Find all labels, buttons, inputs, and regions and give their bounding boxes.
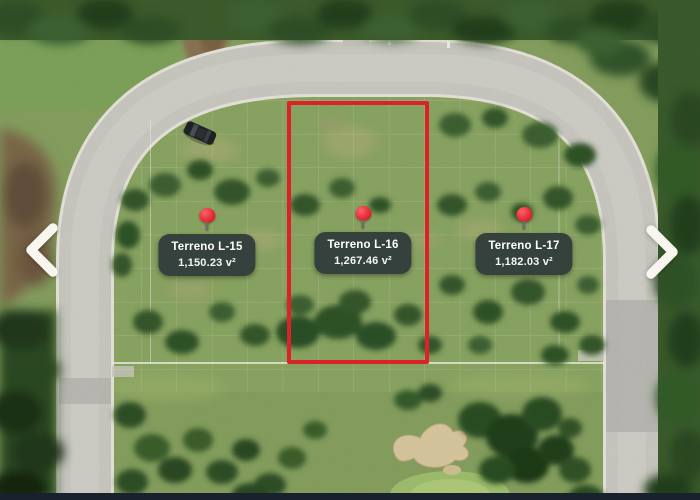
lot-label: Terreno L-17 1,182.03 v² (475, 233, 572, 275)
carousel-prev-button[interactable] (20, 220, 64, 280)
lot-label: Terreno L-16 1,267.46 v² (314, 232, 411, 274)
carousel-next-button[interactable] (640, 222, 684, 282)
lot-marker-l15: Terreno L-15 1,150.23 v² (158, 208, 255, 276)
chevron-right-icon (640, 222, 684, 282)
lot-area: 1,150.23 v² (171, 256, 242, 271)
lot-name: Terreno L-17 (488, 239, 559, 255)
lot-marker-l17: Terreno L-17 1,182.03 v² (475, 207, 572, 275)
lot-name: Terreno L-16 (327, 238, 398, 254)
bottom-bar (0, 493, 700, 500)
listing-photo-viewer: Terreno L-15 1,150.23 v² Terreno L-16 1,… (0, 0, 700, 500)
lot-area: 1,267.46 v² (327, 254, 398, 269)
lot-label: Terreno L-15 1,150.23 v² (158, 234, 255, 276)
map-pin-icon (199, 208, 215, 230)
lot-area: 1,182.03 v² (488, 255, 559, 270)
map-pin-icon (355, 206, 371, 228)
lot-marker-l16: Terreno L-16 1,267.46 v² (314, 206, 411, 274)
chevron-left-icon (20, 220, 64, 280)
lot-name: Terreno L-15 (171, 240, 242, 256)
map-pin-icon (516, 207, 532, 229)
